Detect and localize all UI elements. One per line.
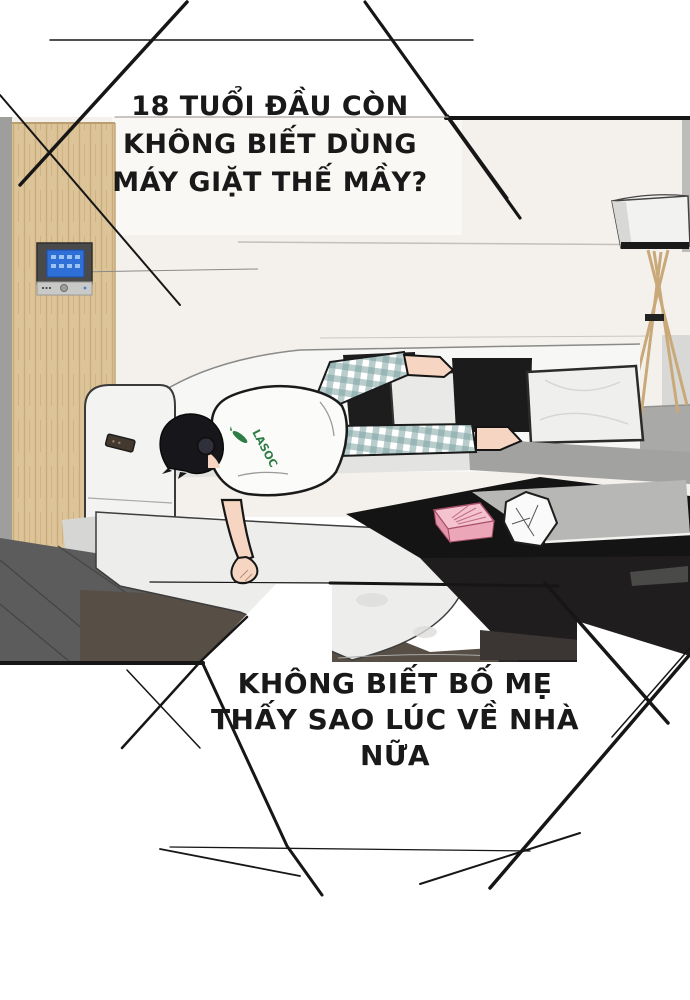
silver-pillow: [527, 366, 643, 443]
speech-line: KHÔNG BIẾT BỐ MẸ: [160, 666, 630, 702]
wall-control-panel: [37, 243, 92, 295]
tshirt: [210, 386, 347, 495]
speech-line: 18 TUỔI ĐẦU CÒN: [70, 88, 470, 126]
speech-line: KHÔNG BIẾT DÙNG: [70, 126, 470, 164]
glasses-icon: [198, 438, 215, 455]
tripod-hub: [645, 314, 664, 321]
bottom-speech-bubble: KHÔNG BIẾT BỐ MẸ THẤY SAO LÚC VỀ NHÀ NỮA: [160, 666, 630, 774]
hand: [231, 557, 257, 583]
comic-panel: LASOC: [0, 0, 690, 1000]
speech-line: THẤY SAO LÚC VỀ NHÀ: [160, 702, 630, 738]
left-wall-edge: [0, 117, 12, 587]
speech-line: MÁY GIẶT THẾ MẦY?: [70, 164, 470, 202]
lamp-shade-underside: [621, 242, 689, 249]
pajama-leg: [328, 424, 476, 456]
panel-dots: [42, 287, 51, 289]
speech-line: NỮA: [160, 738, 630, 774]
panel-button: [61, 285, 68, 292]
top-speech-bubble: 18 TUỔI ĐẦU CÒN KHÔNG BIẾT DÙNG MÁY GIẶT…: [70, 88, 470, 202]
control-panel-screen: [47, 250, 84, 277]
black-pillow: [452, 358, 532, 432]
